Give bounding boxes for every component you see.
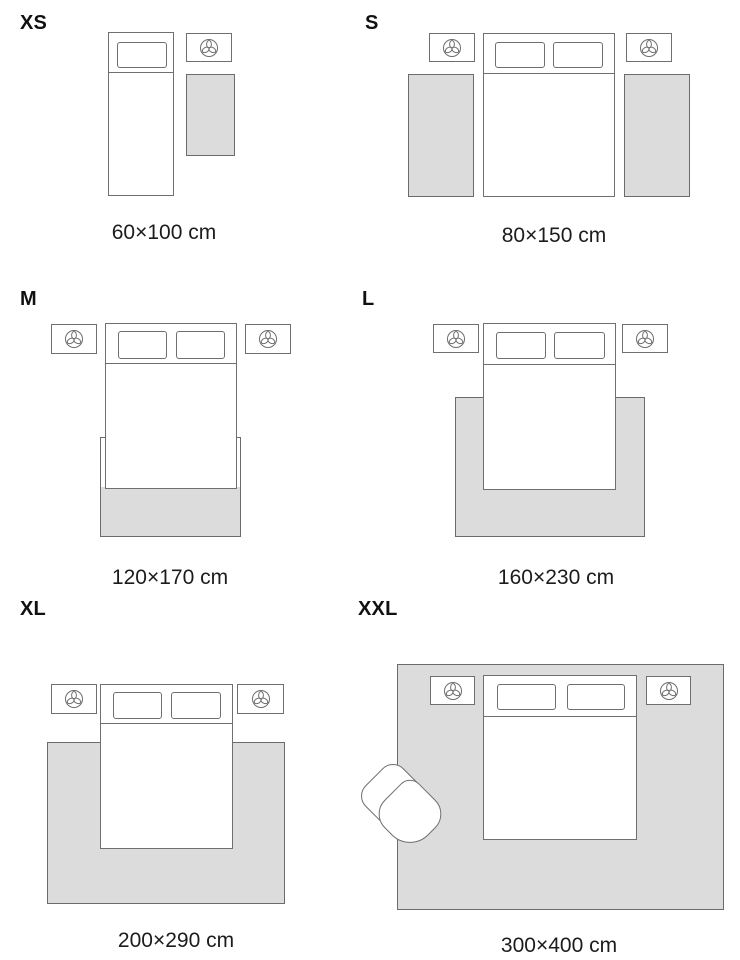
plant-icon <box>198 37 220 59</box>
nightstand-left <box>429 33 475 62</box>
armchair <box>362 766 442 850</box>
pillow <box>495 42 545 68</box>
nightstand-right <box>626 33 672 62</box>
plant-icon <box>445 328 467 350</box>
nightstand-right <box>245 324 291 354</box>
nightstand <box>186 33 232 62</box>
size-caption-xl: 200×290 cm <box>86 929 266 953</box>
headboard-line <box>106 363 236 364</box>
nightstand-left <box>430 676 475 705</box>
size-caption-l: 160×230 cm <box>466 566 646 590</box>
pillow <box>118 331 167 359</box>
size-label-xxl: XXL <box>358 598 398 621</box>
double-bed <box>483 675 637 840</box>
headboard-line <box>484 73 614 74</box>
size-caption-s: 80×150 cm <box>464 224 644 248</box>
plant-icon <box>250 688 272 710</box>
pillow <box>497 684 556 710</box>
pillow <box>113 692 162 719</box>
pillow <box>171 692 221 719</box>
plant-icon <box>441 37 463 59</box>
size-label-l: L <box>362 288 374 311</box>
plant-icon <box>63 328 85 350</box>
nightstand-left <box>51 324 97 354</box>
double-bed <box>105 323 237 489</box>
nightstand-left <box>51 684 97 714</box>
plant-icon <box>63 688 85 710</box>
plant-icon <box>257 328 279 350</box>
nightstand-left <box>433 324 479 353</box>
size-caption-xs: 60×100 cm <box>74 221 254 245</box>
size-label-xs: XS <box>20 12 47 35</box>
size-label-xl: XL <box>20 598 46 621</box>
plant-icon <box>634 328 656 350</box>
pillow <box>117 42 167 68</box>
headboard-line <box>484 364 615 365</box>
pillow <box>567 684 625 710</box>
rug-size-guide: XS 60×100 cm S 80×150 cm M <box>0 0 740 960</box>
nightstand-right <box>237 684 284 714</box>
size-label-s: S <box>365 12 379 35</box>
nightstand-right <box>622 324 668 353</box>
headboard-line <box>484 716 636 717</box>
headboard-line <box>109 72 173 73</box>
pillow <box>176 331 225 359</box>
size-caption-m: 120×170 cm <box>80 566 260 590</box>
double-bed <box>483 323 616 490</box>
headboard-line <box>101 723 232 724</box>
single-bed <box>108 32 174 196</box>
pillow <box>496 332 546 359</box>
size-caption-xxl: 300×400 cm <box>469 934 649 958</box>
size-label-m: M <box>20 288 37 311</box>
pillow <box>553 42 603 68</box>
plant-icon <box>658 680 680 702</box>
plant-icon <box>442 680 464 702</box>
nightstand-right <box>646 676 691 705</box>
plant-icon <box>638 37 660 59</box>
double-bed <box>100 684 233 849</box>
pillow <box>554 332 605 359</box>
double-bed <box>483 33 615 197</box>
